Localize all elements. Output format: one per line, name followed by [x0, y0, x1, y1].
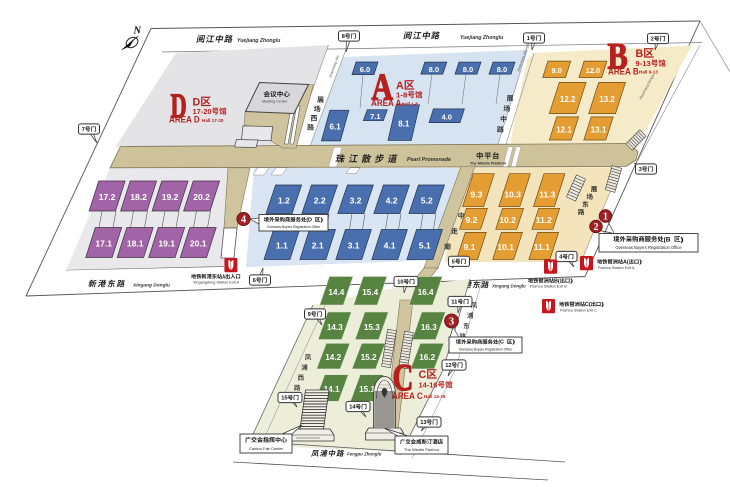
svg-text:14.2: 14.2 [325, 353, 341, 362]
svg-text:3: 3 [639, 167, 642, 173]
svg-text:18.1: 18.1 [127, 239, 144, 249]
svg-text:7: 7 [82, 127, 85, 133]
svg-text:8.0: 8.0 [497, 65, 507, 74]
svg-text:11.1: 11.1 [534, 242, 550, 252]
svg-text:14.3: 14.3 [327, 323, 343, 332]
svg-text:3.2: 3.2 [350, 195, 362, 205]
svg-text:15: 15 [281, 396, 287, 402]
svg-text:Xingang Donglu: Xingang Donglu [132, 283, 170, 289]
svg-text:Overseas Buyers Registration O: Overseas Buyers Registration Office [267, 225, 320, 229]
svg-text:5.1: 5.1 [419, 241, 431, 251]
svg-text:17.1: 17.1 [95, 239, 112, 249]
svg-text:11.2: 11.2 [536, 215, 552, 225]
svg-text:10.3: 10.3 [504, 189, 521, 199]
svg-text:AREA B: AREA B [608, 66, 639, 76]
svg-text:1: 1 [527, 36, 530, 42]
svg-text:13.2: 13.2 [599, 95, 615, 104]
svg-text:8.0: 8.0 [429, 65, 439, 74]
svg-text:14.4: 14.4 [328, 288, 344, 297]
svg-text:8: 8 [342, 34, 345, 40]
svg-text:1: 1 [603, 212, 608, 223]
svg-text:4.1: 4.1 [384, 241, 396, 251]
svg-text:Pearl Promenade: Pearl Promenade [407, 157, 451, 163]
svg-text:(D: (D [306, 217, 312, 223]
svg-text:AREA D: AREA D [169, 114, 200, 124]
svg-text:6: 6 [253, 278, 256, 284]
svg-text:4.2: 4.2 [386, 195, 398, 205]
svg-text:15.2: 15.2 [361, 353, 377, 362]
svg-text:5.2: 5.2 [421, 195, 433, 205]
svg-text:15.1: 15.1 [359, 385, 375, 394]
svg-text:3.1: 3.1 [348, 241, 360, 251]
svg-text:C(: C( [585, 302, 591, 308]
svg-text:4: 4 [241, 215, 247, 226]
svg-text:9: 9 [308, 312, 311, 318]
svg-text:): ) [320, 217, 323, 223]
svg-text:11.3: 11.3 [539, 189, 555, 199]
svg-text:13: 13 [420, 420, 426, 426]
svg-text:Yuejiang Zhonglu: Yuejiang Zhonglu [460, 35, 504, 41]
svg-text:N: N [133, 26, 142, 37]
svg-text:(B: (B [664, 236, 671, 243]
svg-text:Hall 17-20: Hall 17-20 [202, 118, 224, 123]
svg-text:4.0: 4.0 [441, 113, 451, 122]
svg-text:7.1: 7.1 [370, 112, 380, 121]
svg-text:6.0: 6.0 [360, 65, 370, 74]
svg-text:17.2: 17.2 [99, 192, 116, 202]
svg-text:A(: A( [623, 260, 629, 266]
svg-text:): ) [639, 260, 642, 266]
svg-text:): ) [601, 302, 604, 308]
svg-text:20.1: 20.1 [190, 239, 207, 249]
svg-text:Hall 9-13: Hall 9-13 [639, 70, 658, 75]
svg-text:9.1: 9.1 [464, 242, 476, 252]
svg-text:8.1: 8.1 [398, 120, 410, 129]
svg-text:(C: (C [498, 340, 504, 346]
svg-text:18.2: 18.2 [130, 192, 147, 202]
svg-text:2.2: 2.2 [314, 195, 326, 205]
svg-text:Overseas Buyers Registration O: Overseas Buyers Registration Office [459, 347, 512, 351]
svg-text:): ) [570, 279, 573, 285]
svg-text:11: 11 [451, 300, 457, 306]
svg-text:13.1: 13.1 [591, 125, 607, 134]
svg-text:15.3: 15.3 [364, 323, 380, 332]
svg-text:5: 5 [452, 259, 455, 265]
svg-text:14: 14 [349, 405, 356, 411]
svg-text:): ) [512, 340, 515, 346]
svg-text:3: 3 [449, 317, 454, 328]
svg-text:9.0: 9.0 [551, 66, 561, 75]
svg-text:AREA C: AREA C [392, 390, 423, 400]
svg-text:Overseas Buyers Registration O: Overseas Buyers Registration Office [615, 245, 682, 250]
svg-text:Pazhou Station Exit C: Pazhou Station Exit C [560, 308, 597, 312]
svg-text:1.2: 1.2 [278, 195, 290, 205]
svg-text:AREA A: AREA A [371, 98, 401, 108]
svg-text:Hall 1-8: Hall 1-8 [402, 101, 419, 106]
svg-text:1.1: 1.1 [276, 241, 288, 251]
svg-text:9.3: 9.3 [470, 189, 482, 199]
svg-text:15.4: 15.4 [362, 288, 378, 297]
svg-text:Hall 14-16: Hall 14-16 [424, 394, 446, 399]
svg-text:10.1: 10.1 [497, 242, 514, 252]
svg-text:B(: B( [554, 279, 560, 285]
svg-text:The Middle Platform: The Middle Platform [470, 161, 507, 165]
svg-text:10: 10 [397, 280, 403, 286]
svg-text:16.2: 16.2 [419, 353, 435, 362]
svg-text:19.1: 19.1 [158, 239, 175, 249]
svg-text:12.2: 12.2 [560, 95, 576, 104]
svg-text:12.0: 12.0 [586, 66, 601, 75]
svg-text:19.2: 19.2 [162, 192, 179, 202]
svg-text:Pazhou Station Exit A: Pazhou Station Exit A [598, 266, 635, 270]
svg-text:2: 2 [594, 222, 599, 233]
svg-text:12: 12 [445, 363, 451, 369]
svg-text:2: 2 [651, 37, 654, 43]
svg-text:): ) [680, 236, 684, 243]
svg-text:16.4: 16.4 [418, 288, 434, 297]
svg-text:Pazhou Station Exit B: Pazhou Station Exit B [530, 285, 567, 289]
svg-text:8.0: 8.0 [463, 65, 473, 74]
svg-text:Yuejiang Zhonglu: Yuejiang Zhonglu [237, 38, 281, 44]
svg-text:C: C [419, 369, 427, 381]
svg-text:Meeting Center: Meeting Center [262, 99, 288, 103]
svg-text:Canton Fair Center: Canton Fair Center [249, 446, 284, 451]
svg-text:Xingangdong Station Exit A: Xingangdong Station Exit A [193, 280, 239, 284]
svg-text:10.2: 10.2 [499, 215, 516, 225]
svg-text:Xingang Donglu: Xingang Donglu [491, 284, 526, 289]
svg-text:6.1: 6.1 [330, 122, 342, 131]
svg-text:9.2: 9.2 [466, 215, 478, 225]
svg-text:14-16: 14-16 [419, 381, 438, 390]
svg-text:20.2: 20.2 [193, 192, 210, 202]
svg-text:16.3: 16.3 [421, 323, 437, 332]
svg-text:12.1: 12.1 [556, 125, 572, 134]
svg-text:Fengpu Zhonglu: Fengpu Zhonglu [347, 452, 382, 457]
svg-text:2.1: 2.1 [312, 241, 324, 251]
svg-text:The Westin Pazhou: The Westin Pazhou [404, 447, 439, 452]
